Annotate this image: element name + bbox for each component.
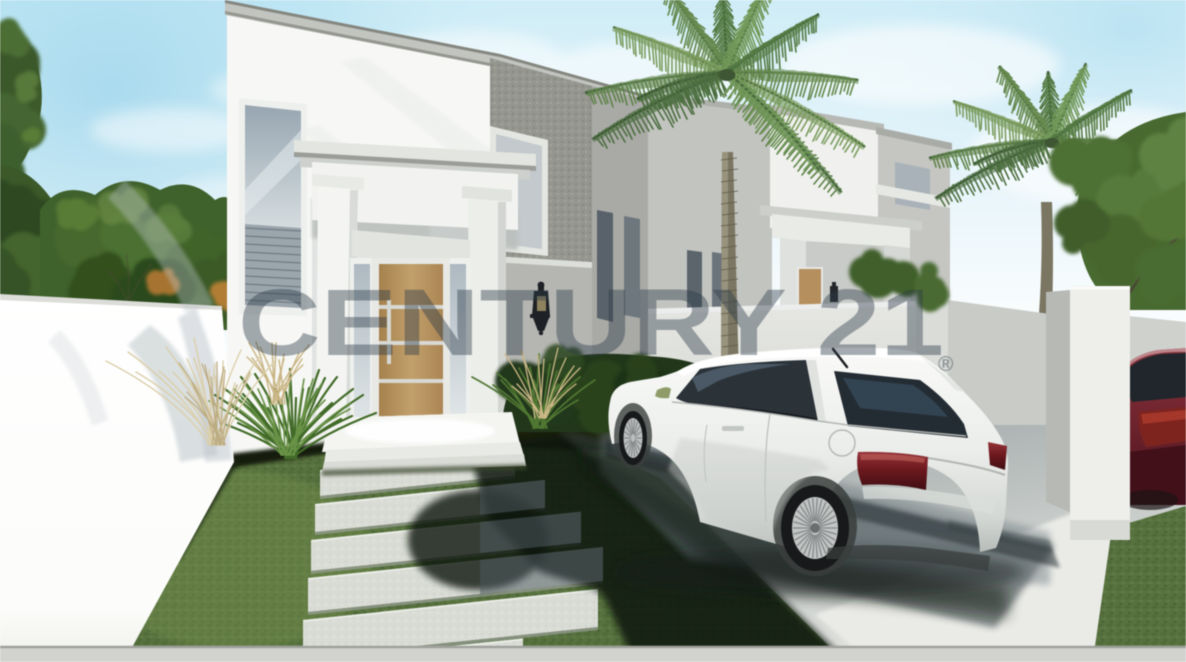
svg-text:®: ®	[938, 353, 954, 376]
svg-text:CENTURY 21: CENTURY 21	[238, 270, 944, 376]
